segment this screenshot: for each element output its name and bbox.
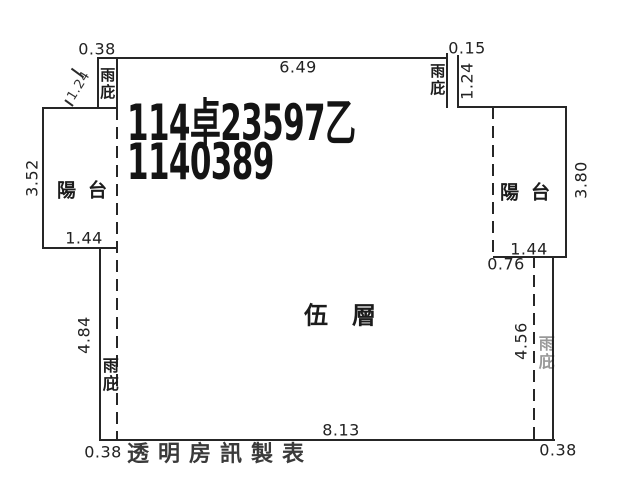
canopy-topleft-right-edge — [116, 57, 118, 108]
dashed-right-lower-boundary — [533, 256, 535, 441]
wall-right-top — [457, 106, 567, 108]
dim-right-canopy-length: 4.56 — [512, 322, 531, 360]
dim-top-right-canopy-width: 0.15 — [448, 39, 486, 58]
dim-right-offset: 0.76 — [487, 255, 525, 274]
dim-bottom-right-width: 0.38 — [539, 441, 577, 460]
stamp-numbers: 114卓23597乙 1140389 — [127, 104, 355, 182]
dim-left-canopy-length: 4.84 — [75, 316, 94, 354]
balcony-right-label: 陽台 — [500, 178, 562, 205]
balcony-right-right-edge — [565, 106, 567, 258]
balcony-left-label: 陽台 — [57, 176, 119, 203]
canopy-top-left-label: 雨庇 — [99, 67, 116, 101]
dim-bottom-width: 8.13 — [322, 421, 360, 440]
balcony-left-top-edge — [42, 107, 118, 109]
dim-top-width: 6.49 — [279, 58, 317, 77]
dim-left-balcony-width: 1.44 — [65, 229, 103, 248]
wall-top — [97, 57, 446, 59]
dim-right-balcony-height: 3.80 — [572, 161, 591, 199]
canopy-top-right-label: 雨庇 — [429, 63, 446, 97]
canopy-topright-left-edge — [446, 53, 448, 108]
canopy-bottom-right-label: 雨庇 — [536, 335, 554, 371]
floor-label: 伍層 — [304, 296, 400, 331]
canopy-bottom-left-label: 雨庇 — [100, 357, 118, 393]
floor-plan-sheet: 114卓23597乙 1140389 0.38 6.49 0.15 1.24 1… — [0, 0, 639, 480]
wall-left-lower — [99, 247, 101, 441]
dashed-balcony-right-left-edge — [492, 107, 494, 258]
balcony-left-left-edge — [42, 107, 44, 249]
credit-watermark: 透明房訊製表 — [127, 436, 313, 468]
dim-bottom-left-width: 0.38 — [84, 443, 122, 462]
dim-left-balcony-height: 3.52 — [23, 159, 42, 197]
dim-top-right-canopy-height: 1.24 — [458, 62, 477, 100]
dim-top-left-canopy-width: 0.38 — [78, 40, 116, 59]
